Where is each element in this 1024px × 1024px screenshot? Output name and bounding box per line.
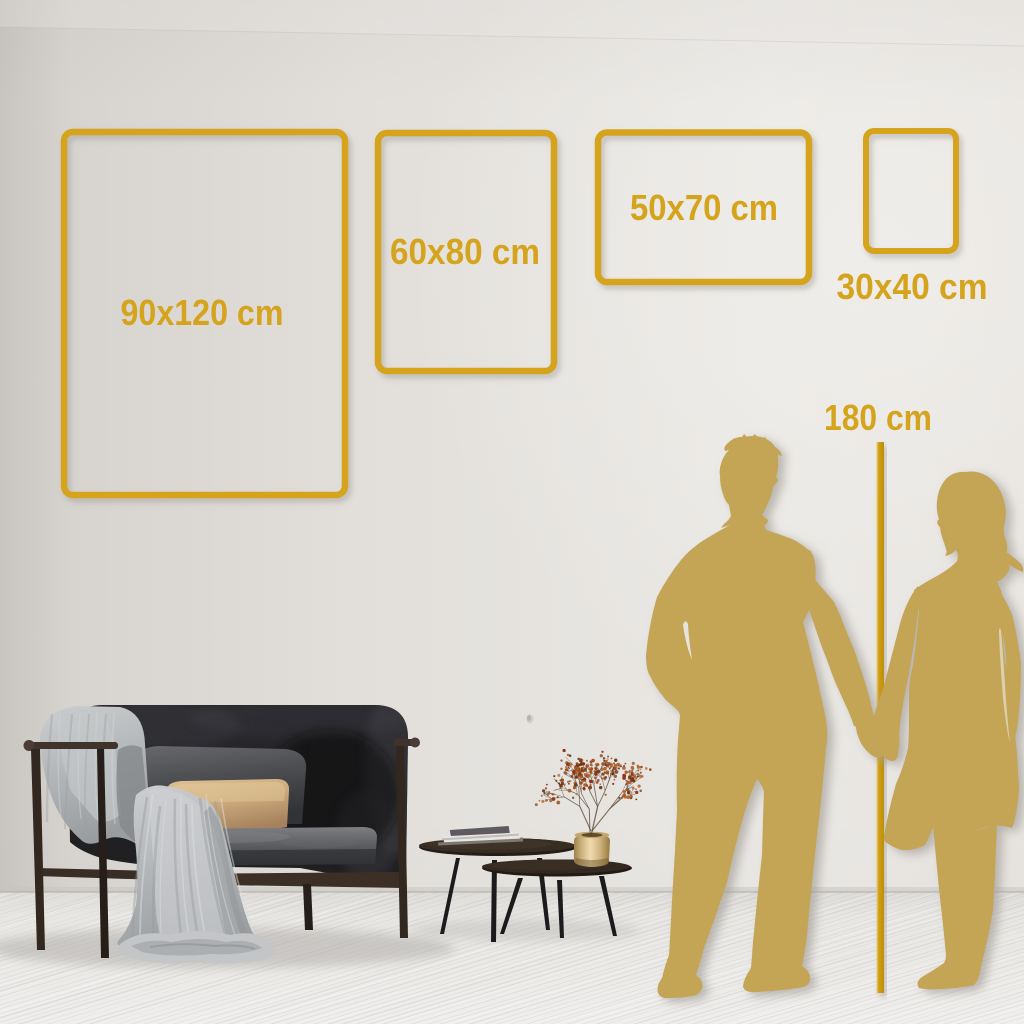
svg-text:180 cm: 180 cm <box>824 397 932 438</box>
svg-text:50x70 cm: 50x70 cm <box>630 187 778 228</box>
svg-text:90x120 cm: 90x120 cm <box>121 292 284 333</box>
svg-text:30x40 cm: 30x40 cm <box>837 266 988 307</box>
svg-text:60x80 cm: 60x80 cm <box>390 231 540 272</box>
